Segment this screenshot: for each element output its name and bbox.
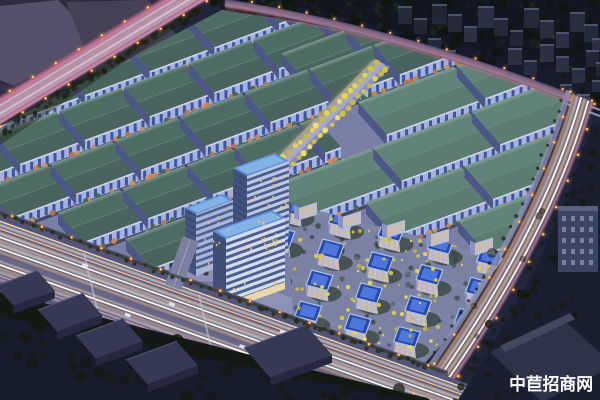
- svg-text:中苣招商网: 中苣招商网: [509, 374, 593, 394]
